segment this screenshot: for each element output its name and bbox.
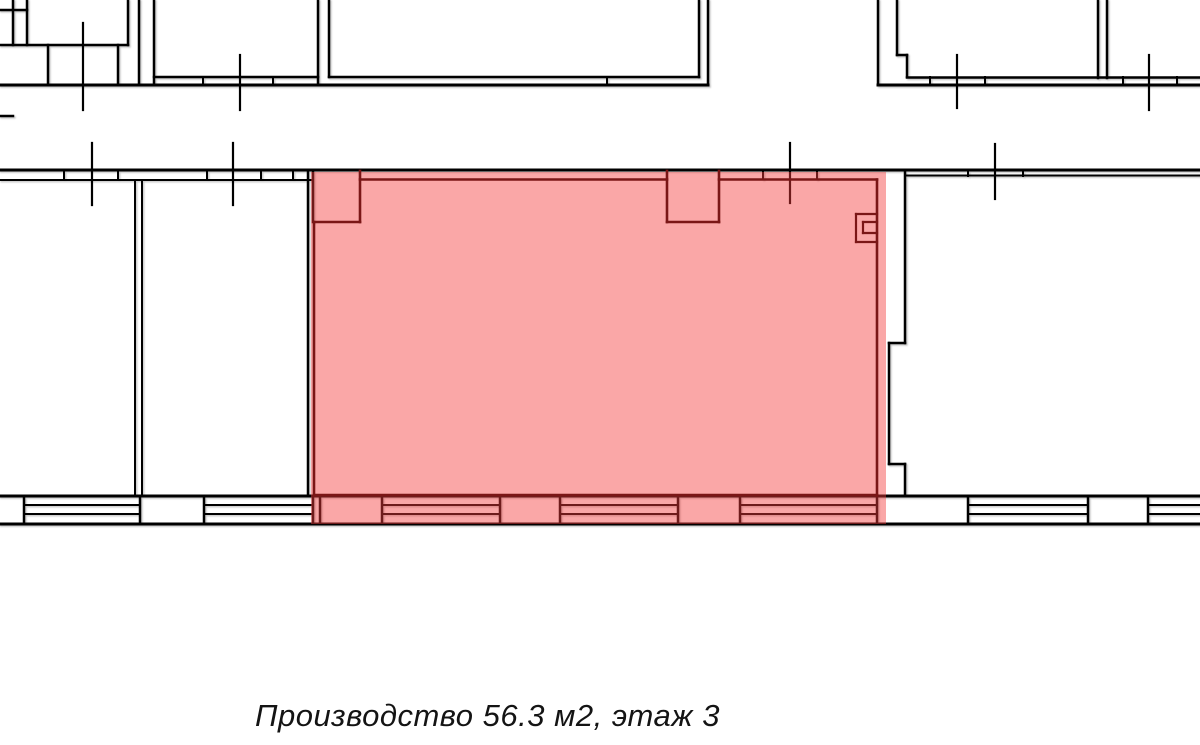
floor-plan: Производство 56.3 м2, этаж 3	[0, 0, 1200, 745]
highlight-overlay[interactable]	[311, 172, 886, 524]
floor-plan-canvas	[0, 0, 1200, 745]
area-caption: Производство 56.3 м2, этаж 3	[255, 698, 720, 734]
